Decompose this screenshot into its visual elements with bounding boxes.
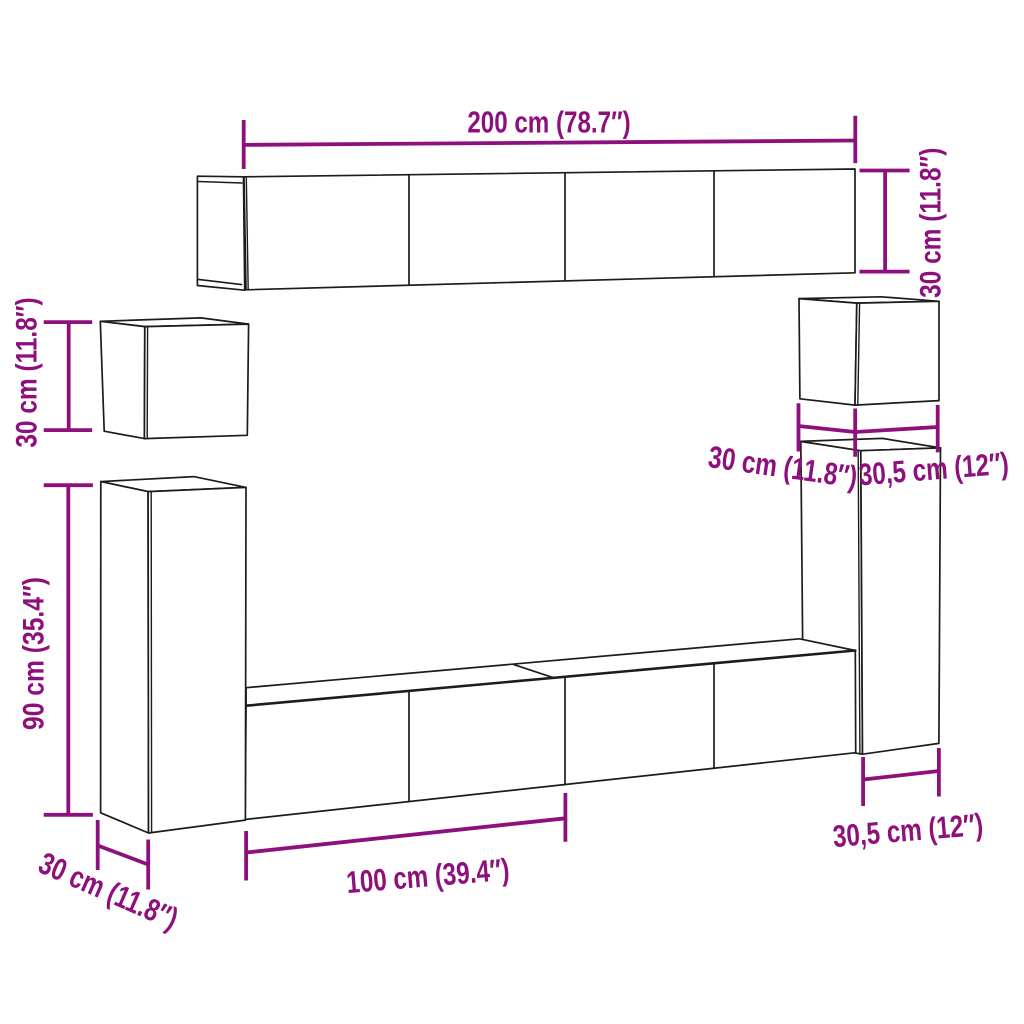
svg-text:90 cm (35.4″): 90 cm (35.4″) <box>16 577 50 730</box>
svg-text:30 cm (11.8″): 30 cm (11.8″) <box>9 297 43 447</box>
svg-text:200 cm (78.7″): 200 cm (78.7″) <box>467 105 630 140</box>
svg-text:30 cm (11.8″): 30 cm (11.8″) <box>913 148 947 298</box>
